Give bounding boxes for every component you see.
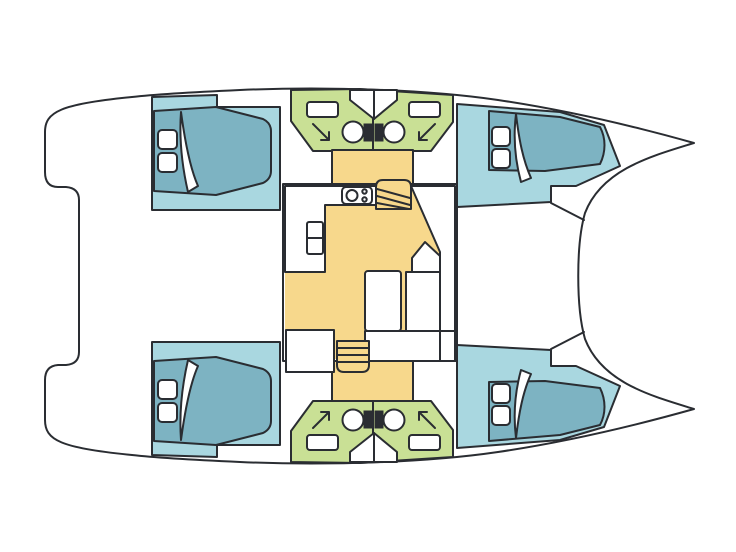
toilet-tank <box>364 411 372 428</box>
catamaran-floor-plan <box>0 0 736 552</box>
settee-right <box>406 272 440 331</box>
toilet-icon <box>343 122 364 143</box>
vanity <box>409 435 440 450</box>
toilet-icon <box>384 122 405 143</box>
toilet-icon <box>384 410 405 431</box>
vanity <box>307 102 338 117</box>
toilet-tank <box>375 411 383 428</box>
deck-hatch <box>492 406 510 425</box>
vanity <box>307 435 338 450</box>
deck-hatch <box>158 153 177 172</box>
settee-bottom <box>365 331 455 361</box>
floor-plan-canvas <box>0 0 736 552</box>
deck-hatch <box>492 149 510 168</box>
deck-hatch <box>158 380 177 399</box>
stairs-to-starboard-hull <box>337 341 369 372</box>
aft-cabin-berth <box>154 357 271 445</box>
toilet-icon <box>343 410 364 431</box>
deck-hatch <box>492 127 510 146</box>
toilet-tank <box>375 124 383 141</box>
deck-hatch <box>158 403 177 422</box>
deck-hatch <box>492 384 510 403</box>
galley-aft-unit <box>286 330 334 372</box>
vanity <box>409 102 440 117</box>
toilet-tank <box>364 124 372 141</box>
aft-cabin-berth <box>154 107 271 195</box>
dining-table <box>365 271 401 331</box>
deck-hatch <box>158 130 177 149</box>
